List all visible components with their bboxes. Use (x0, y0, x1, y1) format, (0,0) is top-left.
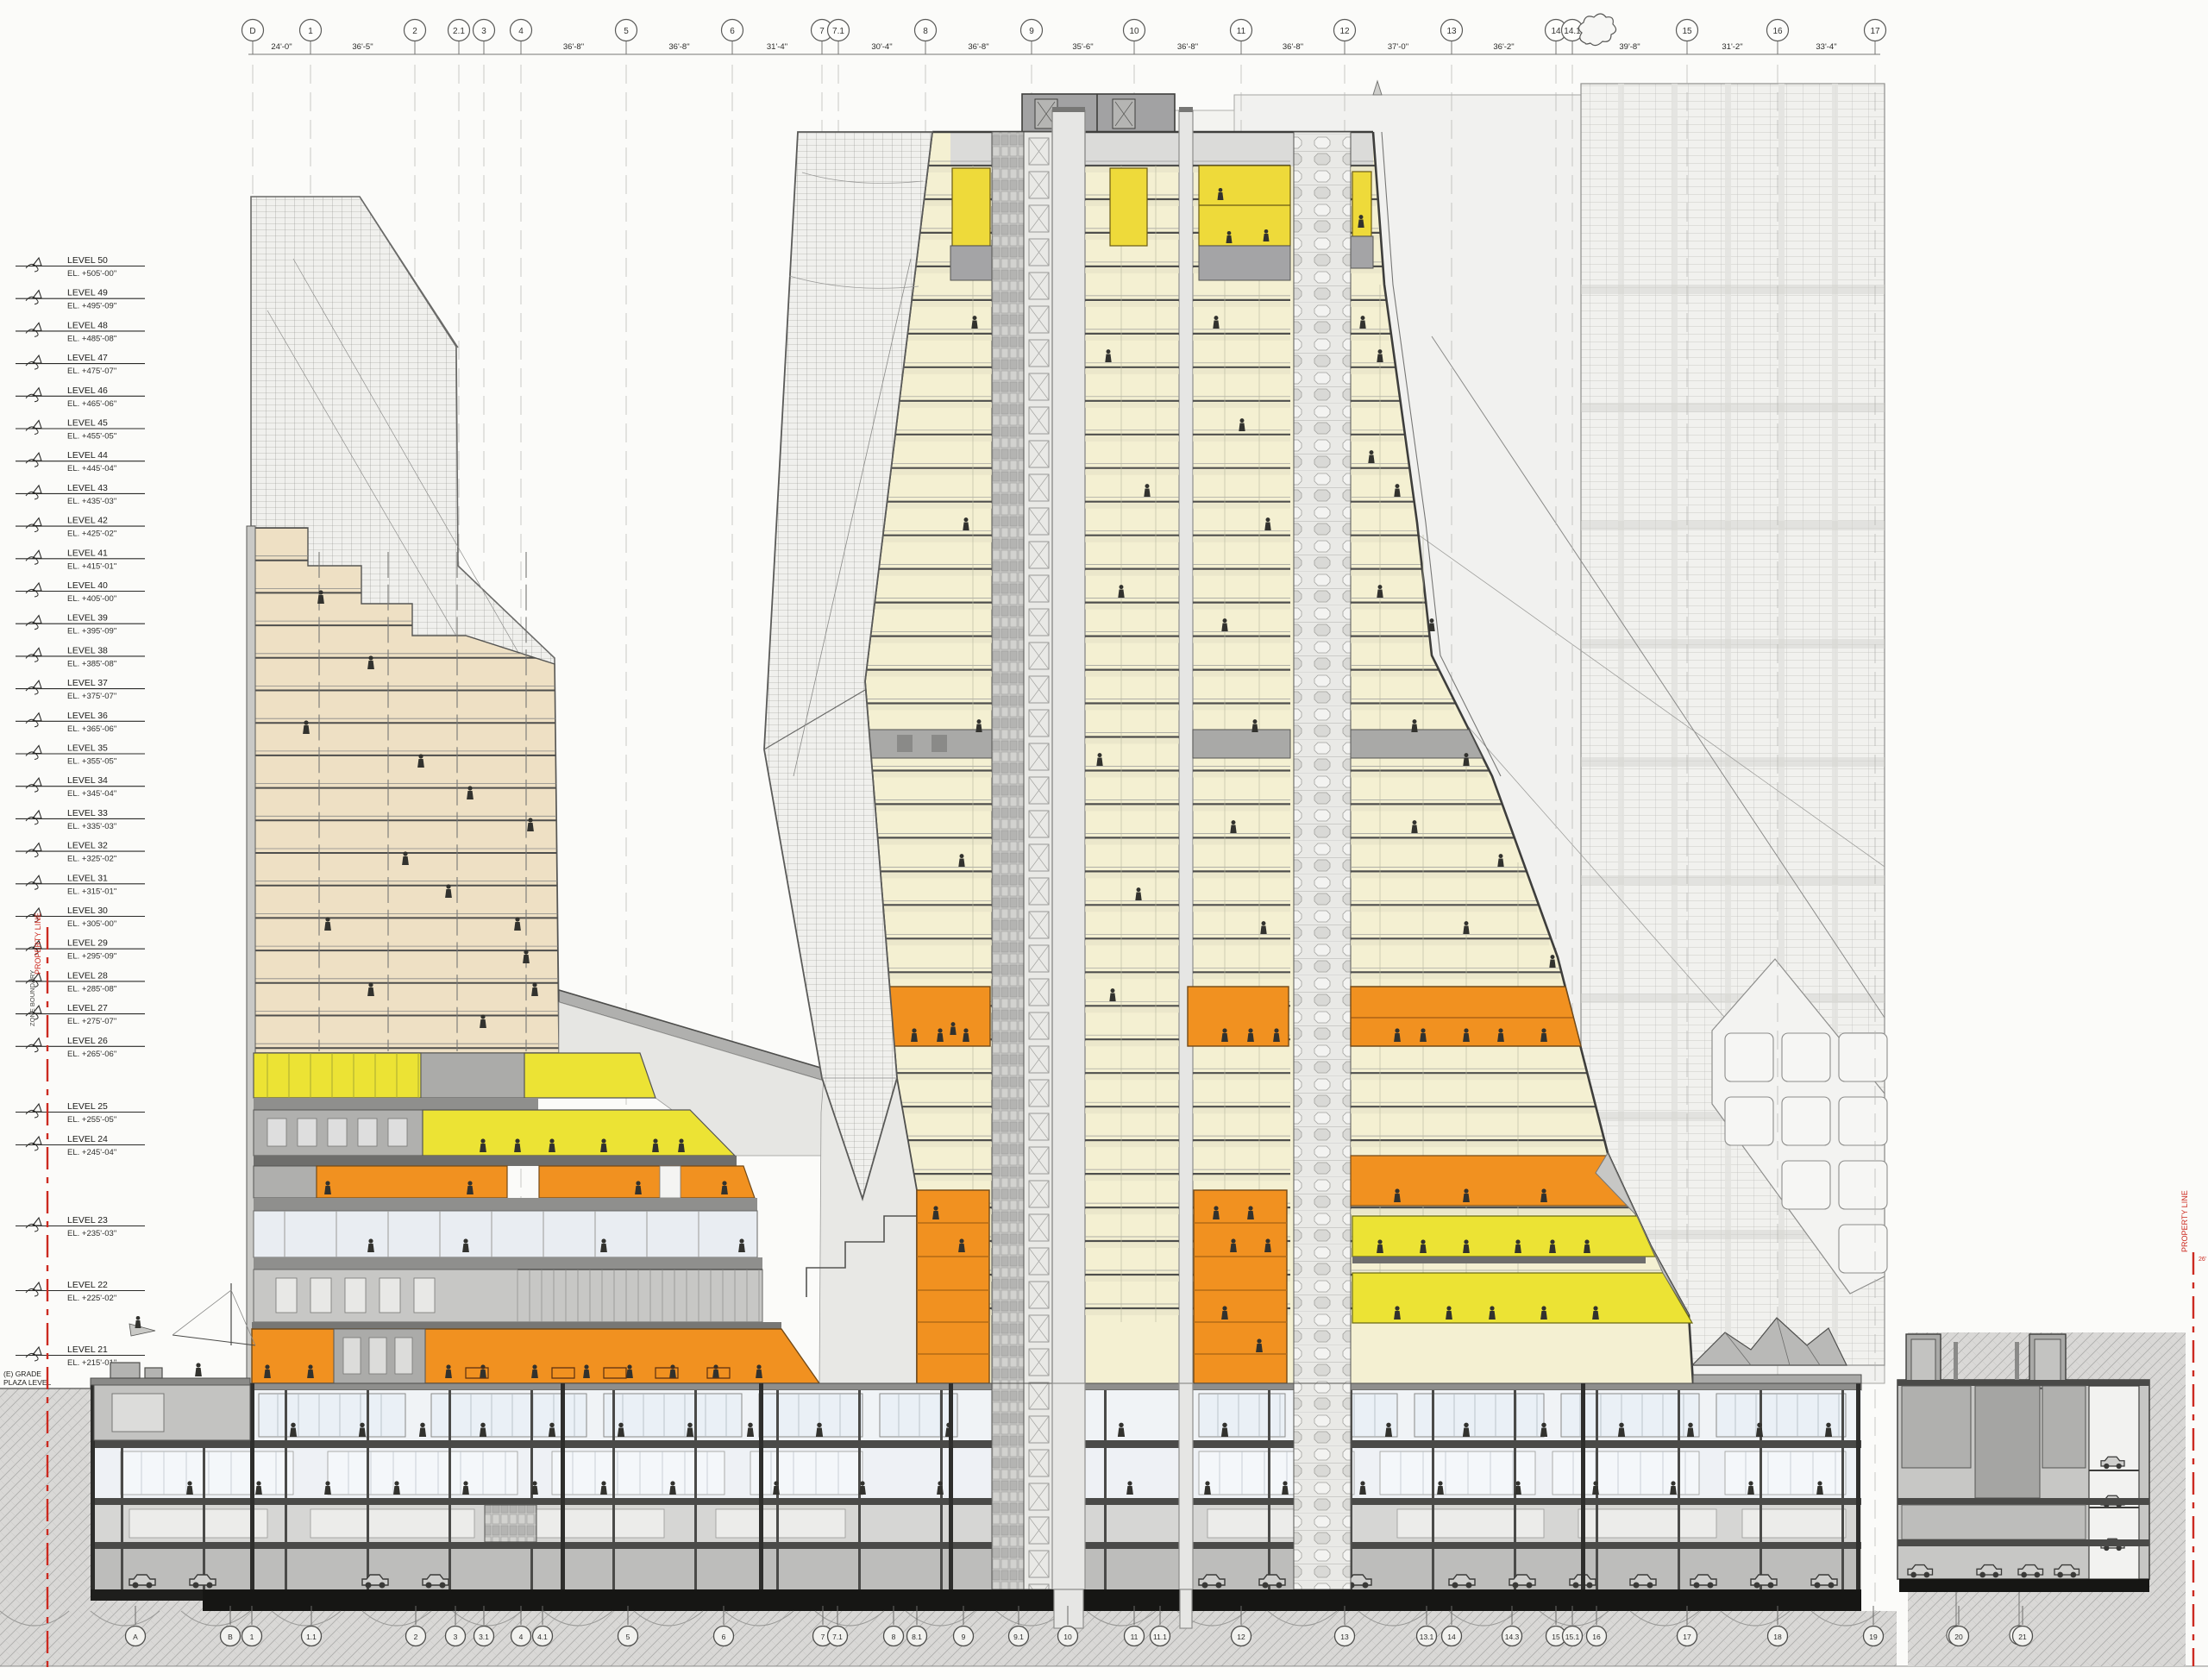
svg-text:LEVEL 33: LEVEL 33 (67, 808, 108, 818)
svg-text:18: 18 (1773, 1633, 1782, 1641)
svg-text:36'-8": 36'-8" (1283, 42, 1303, 52)
svg-text:EL. +405'-00": EL. +405'-00" (67, 594, 116, 604)
svg-text:LEVEL 38: LEVEL 38 (67, 645, 108, 655)
svg-text:EL. +305'-00": EL. +305'-00" (67, 919, 116, 929)
svg-text:EL. +455'-05": EL. +455'-05" (67, 432, 116, 442)
svg-text:6: 6 (730, 27, 735, 36)
svg-text:EL. +485'-08": EL. +485'-08" (67, 334, 116, 343)
svg-text:4.1: 4.1 (537, 1633, 548, 1641)
svg-text:EL. +315'-01": EL. +315'-01" (67, 887, 116, 896)
svg-text:2: 2 (414, 1633, 418, 1641)
svg-text:11: 11 (1131, 1633, 1138, 1641)
svg-text:EL. +385'-08": EL. +385'-08" (67, 659, 116, 668)
svg-text:21: 21 (2018, 1633, 2027, 1641)
svg-text:16: 16 (1772, 27, 1783, 36)
svg-text:19: 19 (1869, 1633, 1878, 1641)
svg-text:2: 2 (412, 27, 417, 36)
svg-text:5: 5 (626, 1633, 630, 1641)
svg-text:7: 7 (821, 1633, 825, 1641)
svg-text:EL. +285'-08": EL. +285'-08" (67, 984, 116, 994)
svg-text:LEVEL 30: LEVEL 30 (67, 906, 108, 916)
svg-text:6: 6 (722, 1633, 726, 1641)
svg-text:8: 8 (923, 27, 928, 36)
svg-text:PLAZA LEVEL: PLAZA LEVEL (3, 1378, 52, 1387)
svg-text:ZONE BOUNDARY: ZONE BOUNDARY (28, 970, 36, 1026)
svg-text:17: 17 (1870, 27, 1880, 36)
svg-text:37'-0": 37'-0" (1388, 42, 1408, 52)
svg-text:EL. +495'-09": EL. +495'-09" (67, 302, 116, 311)
svg-text:LEVEL 39: LEVEL 39 (67, 613, 108, 624)
svg-text:36'-2": 36'-2" (1493, 42, 1514, 52)
svg-text:8: 8 (892, 1633, 896, 1641)
svg-text:LEVEL 50: LEVEL 50 (67, 255, 108, 266)
svg-text:LEVEL 23: LEVEL 23 (67, 1215, 108, 1226)
svg-text:LEVEL 43: LEVEL 43 (67, 483, 108, 493)
svg-text:31'-2": 31'-2" (1722, 42, 1742, 52)
svg-text:EL. +355'-05": EL. +355'-05" (67, 757, 116, 767)
svg-text:EL. +265'-06": EL. +265'-06" (67, 1050, 116, 1059)
svg-text:EL. +505'-00": EL. +505'-00" (67, 269, 116, 279)
svg-text:LEVEL 47: LEVEL 47 (67, 353, 108, 363)
svg-text:LEVEL 36: LEVEL 36 (67, 711, 108, 721)
svg-text:LEVEL 46: LEVEL 46 (67, 386, 108, 396)
svg-text:EL. +215'-01": EL. +215'-01" (67, 1358, 116, 1368)
svg-text:36'-8": 36'-8" (563, 42, 584, 52)
svg-text:36'-5": 36'-5" (352, 42, 373, 52)
svg-text:9.1: 9.1 (1013, 1633, 1024, 1641)
svg-text:15.1: 15.1 (1565, 1633, 1580, 1641)
svg-text:LEVEL 22: LEVEL 22 (67, 1280, 108, 1290)
svg-text:PROPERTY LINE: PROPERTY LINE (2180, 1190, 2189, 1252)
svg-text:4: 4 (518, 27, 524, 36)
svg-text:31'-4": 31'-4" (767, 42, 787, 52)
svg-text:26': 26' (2199, 1257, 2206, 1263)
svg-text:1.1: 1.1 (306, 1633, 317, 1641)
svg-text:30'-4": 30'-4" (871, 42, 892, 52)
svg-text:D: D (249, 27, 255, 36)
svg-text:16: 16 (1592, 1633, 1601, 1641)
svg-text:LEVEL 21: LEVEL 21 (67, 1345, 108, 1355)
svg-text:10: 10 (1063, 1633, 1072, 1641)
svg-text:1: 1 (308, 27, 313, 36)
svg-text:7.1: 7.1 (832, 27, 844, 36)
svg-text:EL. +345'-04": EL. +345'-04" (67, 789, 116, 799)
svg-text:3: 3 (481, 27, 486, 36)
svg-text:PROPERTY LINE: PROPERTY LINE (34, 912, 42, 975)
svg-text:LEVEL 44: LEVEL 44 (67, 450, 108, 461)
svg-text:36'-8": 36'-8" (668, 42, 689, 52)
svg-text:LEVEL 49: LEVEL 49 (67, 288, 108, 298)
svg-text:LEVEL 26: LEVEL 26 (67, 1036, 108, 1046)
svg-text:EL. +465'-06": EL. +465'-06" (67, 399, 116, 409)
svg-text:1: 1 (250, 1633, 254, 1641)
svg-text:LEVEL 35: LEVEL 35 (67, 743, 108, 754)
svg-text:15: 15 (1682, 27, 1692, 36)
svg-text:36'-8": 36'-8" (968, 42, 988, 52)
svg-text:LEVEL 40: LEVEL 40 (67, 580, 108, 591)
svg-text:LEVEL 48: LEVEL 48 (67, 320, 108, 330)
svg-text:13: 13 (1340, 1633, 1349, 1641)
svg-text:33'-4": 33'-4" (1816, 42, 1836, 52)
svg-text:14.3: 14.3 (1505, 1633, 1520, 1641)
svg-text:9: 9 (1029, 27, 1034, 36)
svg-text:12: 12 (1339, 27, 1350, 36)
svg-text:EL. +255'-05": EL. +255'-05" (67, 1115, 116, 1125)
svg-text:2.1: 2.1 (453, 27, 465, 36)
svg-text:LEVEL 31: LEVEL 31 (67, 873, 108, 883)
svg-text:8.1: 8.1 (912, 1633, 922, 1641)
svg-text:EL. +435'-03": EL. +435'-03" (67, 497, 116, 506)
svg-text:EL. +235'-03": EL. +235'-03" (67, 1229, 116, 1238)
svg-text:14: 14 (1447, 1633, 1456, 1641)
svg-text:20: 20 (1954, 1633, 1963, 1641)
svg-text:A: A (133, 1633, 138, 1641)
svg-text:EL. +245'-04": EL. +245'-04" (67, 1148, 116, 1157)
svg-text:LEVEL 29: LEVEL 29 (67, 938, 108, 949)
svg-text:3.1: 3.1 (479, 1633, 489, 1641)
svg-text:EL. +395'-09": EL. +395'-09" (67, 627, 116, 636)
svg-text:LEVEL 24: LEVEL 24 (67, 1134, 108, 1144)
svg-text:35'-6": 35'-6" (1072, 42, 1093, 52)
svg-text:11.1: 11.1 (1153, 1633, 1167, 1641)
svg-text:(E) GRADE: (E) GRADE (3, 1370, 41, 1378)
svg-text:11: 11 (1237, 27, 1246, 36)
svg-text:LEVEL 25: LEVEL 25 (67, 1101, 108, 1112)
svg-text:EL. +225'-02": EL. +225'-02" (67, 1294, 116, 1303)
svg-text:3: 3 (454, 1633, 458, 1641)
svg-text:LEVEL 45: LEVEL 45 (67, 418, 108, 429)
svg-text:LEVEL 32: LEVEL 32 (67, 841, 108, 851)
svg-text:EL. +275'-07": EL. +275'-07" (67, 1017, 116, 1026)
svg-text:12: 12 (1237, 1633, 1245, 1641)
svg-text:EL. +365'-06": EL. +365'-06" (67, 724, 116, 734)
svg-text:EL. +375'-07": EL. +375'-07" (67, 692, 116, 701)
svg-text:4: 4 (519, 1633, 524, 1641)
svg-text:EL. +325'-02": EL. +325'-02" (67, 855, 116, 864)
svg-text:13: 13 (1446, 27, 1457, 36)
svg-text:LEVEL 41: LEVEL 41 (67, 548, 108, 558)
svg-text:LEVEL 34: LEVEL 34 (67, 775, 108, 786)
svg-text:17: 17 (1683, 1633, 1691, 1641)
svg-text:EL. +295'-09": EL. +295'-09" (67, 952, 116, 962)
svg-text:EL. +335'-03": EL. +335'-03" (67, 822, 116, 831)
svg-text:5: 5 (624, 27, 629, 36)
svg-text:LEVEL 37: LEVEL 37 (67, 678, 108, 688)
svg-text:24'-0": 24'-0" (271, 42, 292, 52)
svg-text:LEVEL 42: LEVEL 42 (67, 516, 108, 526)
svg-text:7: 7 (819, 27, 825, 36)
svg-text:9: 9 (962, 1633, 966, 1641)
svg-text:14: 14 (1551, 27, 1561, 36)
svg-text:B: B (228, 1633, 233, 1641)
svg-text:10: 10 (1129, 27, 1139, 36)
svg-text:LEVEL 27: LEVEL 27 (67, 1003, 108, 1013)
svg-text:EL. +425'-02": EL. +425'-02" (67, 530, 116, 539)
svg-text:EL. +415'-01": EL. +415'-01" (67, 561, 116, 571)
svg-text:13.1: 13.1 (1420, 1633, 1434, 1641)
svg-text:EL. +445'-04": EL. +445'-04" (67, 464, 116, 473)
svg-text:36'-8": 36'-8" (1177, 42, 1198, 52)
svg-text:15: 15 (1552, 1633, 1560, 1641)
svg-text:LEVEL 28: LEVEL 28 (67, 970, 108, 981)
svg-text:EL. +475'-07": EL. +475'-07" (67, 367, 116, 376)
svg-text:39'-8": 39'-8" (1619, 42, 1640, 52)
svg-text:7.1: 7.1 (832, 1633, 843, 1641)
